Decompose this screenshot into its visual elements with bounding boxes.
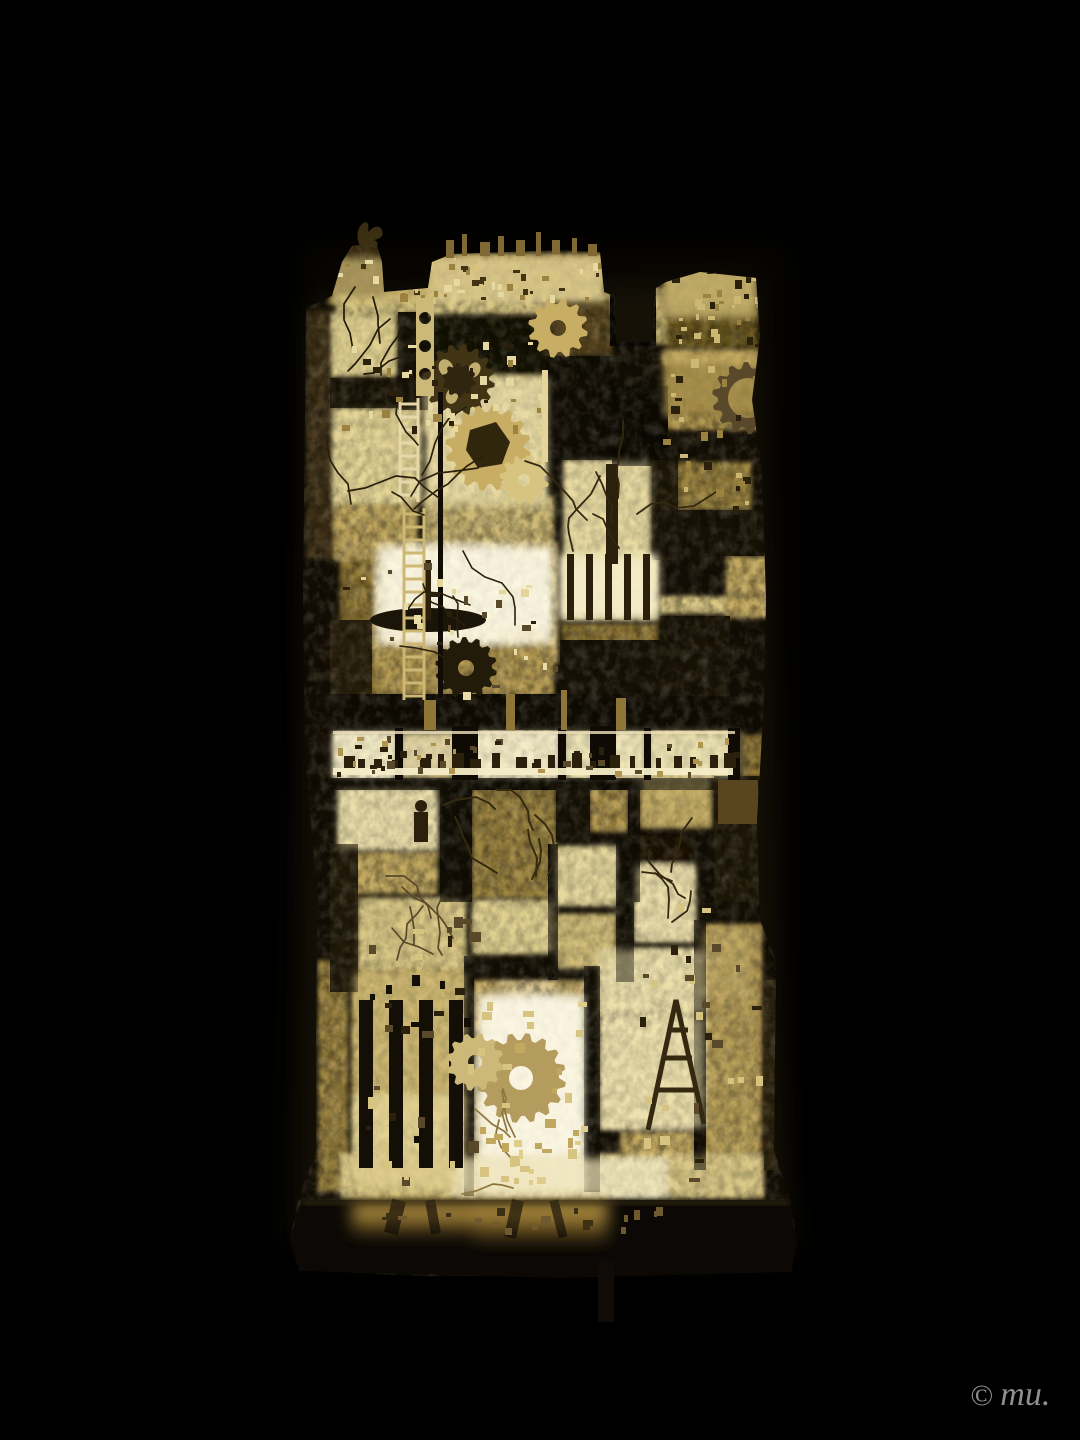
svg-text:© mu.: © mu.: [970, 1376, 1050, 1413]
